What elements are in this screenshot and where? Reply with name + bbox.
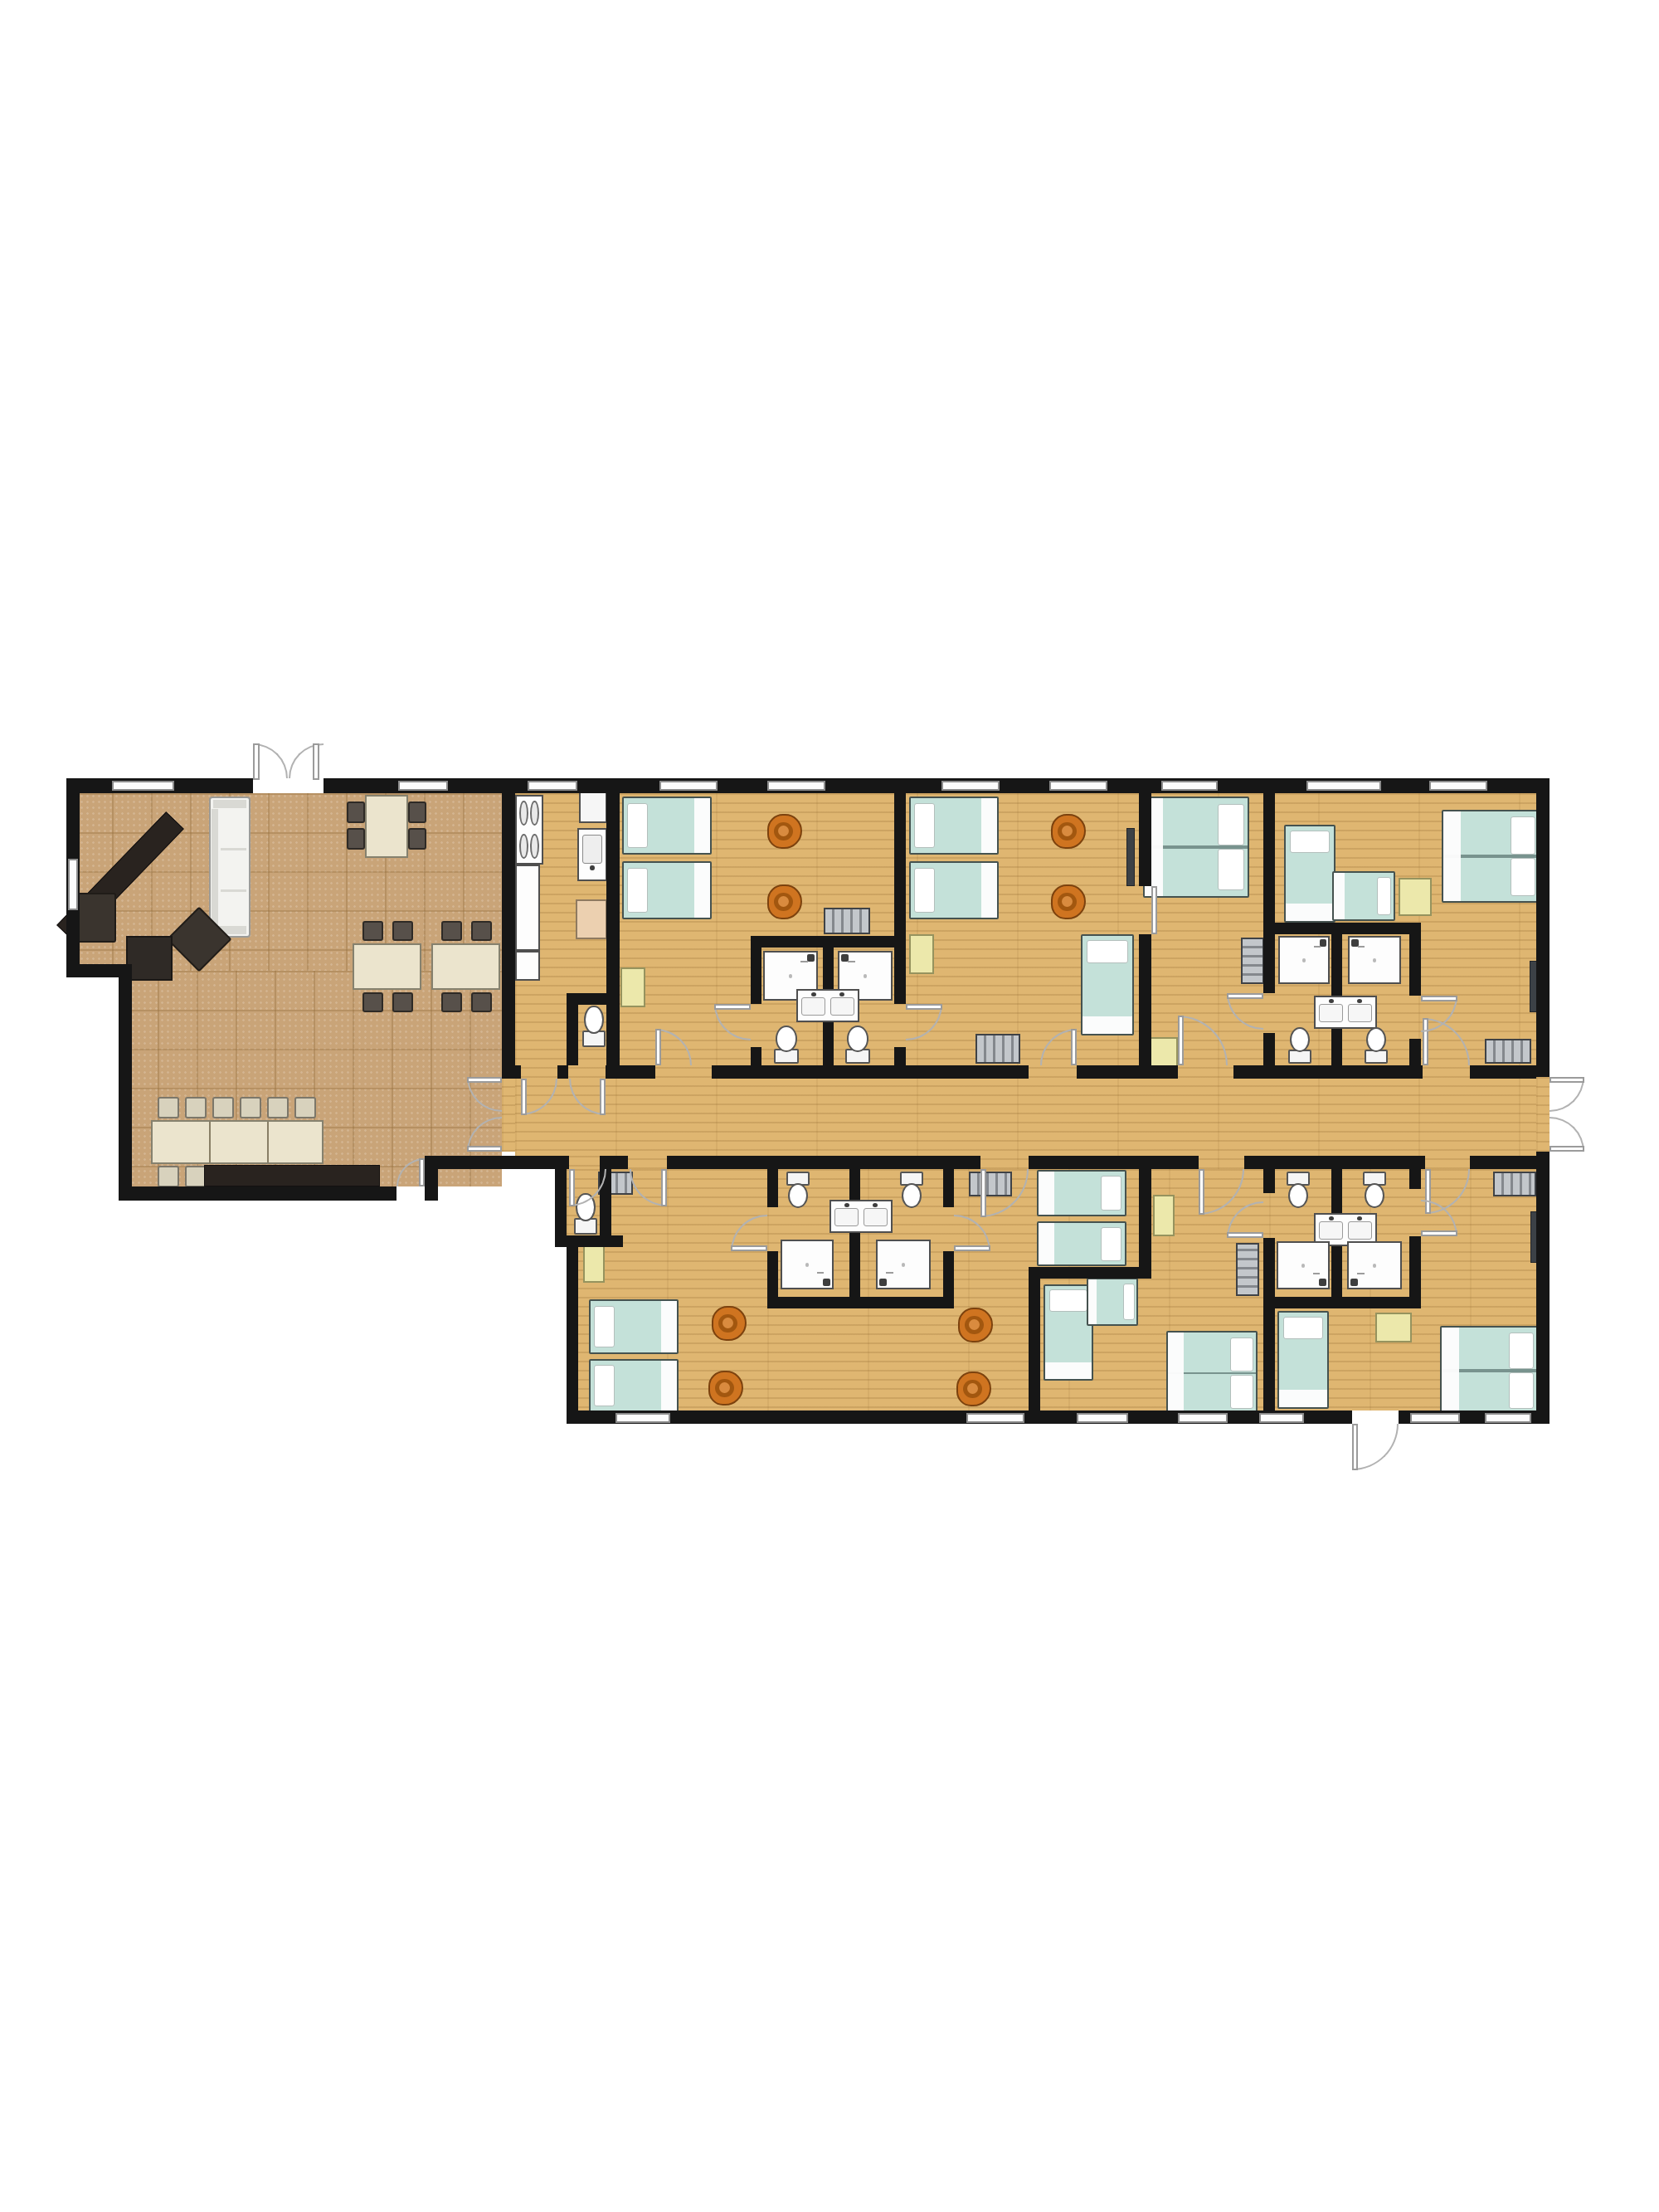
double-washbasin	[1314, 996, 1377, 1029]
wall	[555, 1235, 623, 1247]
shower	[1277, 1241, 1330, 1289]
shower-head	[1319, 1279, 1326, 1286]
bathroom-south-2-left-door	[1227, 1232, 1263, 1238]
sheet	[1039, 1172, 1054, 1215]
wall	[1139, 1169, 1151, 1277]
chaird	[362, 921, 383, 941]
wall	[894, 793, 906, 1004]
toilet	[782, 1172, 814, 1210]
chaird	[471, 921, 492, 941]
wall	[1029, 1156, 1199, 1169]
nstand	[583, 1241, 605, 1283]
chaird	[347, 801, 365, 823]
window	[615, 1413, 670, 1423]
kitchen-door	[521, 1079, 527, 1115]
toilet-bowl	[847, 1026, 868, 1052]
common-room-entrance-left-leaf	[253, 743, 260, 780]
toilet	[1359, 1172, 1390, 1210]
toilet	[1360, 1026, 1392, 1064]
nstand	[1399, 878, 1432, 916]
wall	[1331, 934, 1342, 996]
wall	[567, 993, 578, 1065]
shower	[1347, 1241, 1402, 1289]
single-bed	[589, 1299, 679, 1354]
burner	[519, 801, 528, 826]
pillow	[1283, 1317, 1323, 1339]
basin	[1348, 1221, 1372, 1240]
shower-hose	[800, 961, 808, 962]
wall	[1029, 1267, 1151, 1279]
wall	[555, 1156, 567, 1247]
wall	[823, 1022, 834, 1065]
shower	[876, 1240, 931, 1289]
ward	[1493, 1172, 1536, 1196]
family-room-north-2-door	[1071, 1029, 1077, 1065]
chaird	[441, 992, 462, 1012]
nstand	[909, 934, 934, 974]
basin	[1319, 1221, 1343, 1240]
corridor-west-double-door-lower	[467, 1146, 502, 1152]
pillow	[1230, 1375, 1253, 1409]
pillow	[594, 1306, 615, 1348]
dining-table-a	[353, 943, 421, 990]
corridor-east-door-floor	[1536, 1077, 1550, 1152]
wall	[1409, 1169, 1421, 1189]
single-bed	[1037, 1170, 1126, 1216]
faucet	[873, 1203, 878, 1207]
common-room-entrance-right-leaf	[313, 743, 319, 780]
shower-hose	[1313, 1273, 1320, 1274]
chaird	[362, 992, 383, 1012]
shower-hose	[1358, 946, 1365, 948]
cushion-seam	[221, 848, 246, 850]
basin	[801, 997, 825, 1016]
toilet	[896, 1172, 927, 1210]
toilet-bowl	[1365, 1183, 1384, 1208]
bathroom-north-2-right-door	[1421, 996, 1457, 1001]
faucet	[844, 1203, 849, 1207]
shower-head	[823, 1279, 829, 1286]
wall	[502, 1065, 521, 1079]
sheet	[981, 863, 997, 918]
shower-drain	[864, 974, 868, 978]
wall	[606, 793, 620, 1065]
faucet	[1329, 1216, 1334, 1220]
sheet	[1039, 1223, 1054, 1264]
banquet-table-12	[151, 1120, 324, 1164]
white-sofa	[209, 797, 251, 938]
pillow	[1101, 1176, 1121, 1211]
wall	[1536, 778, 1550, 1077]
chaird	[392, 921, 413, 941]
window	[659, 781, 718, 791]
window	[966, 1413, 1024, 1423]
faucet	[839, 992, 844, 996]
toilet-bowl	[776, 1026, 797, 1052]
wall	[767, 1297, 954, 1308]
common-room-exterior-door-south	[419, 1158, 425, 1186]
bathroom-north-1-right-door	[906, 1004, 942, 1010]
sheet	[661, 1361, 677, 1411]
faucet	[1329, 999, 1334, 1003]
pillow	[1511, 816, 1535, 854]
wc-north-toilet	[579, 1004, 609, 1047]
basin	[830, 997, 854, 1016]
ward-v	[1241, 938, 1264, 984]
shower-drain	[1373, 1264, 1377, 1268]
pillow	[627, 868, 648, 913]
bathroom-north-2-left-door	[1227, 993, 1263, 999]
pillow	[1509, 1372, 1534, 1409]
window	[1306, 781, 1381, 791]
shower-drain	[805, 1263, 810, 1267]
window	[1077, 1413, 1128, 1423]
page	[0, 0, 1659, 2212]
pillow	[1509, 1333, 1534, 1369]
wall	[1263, 1033, 1275, 1065]
wall	[751, 936, 906, 948]
wall	[119, 964, 132, 1201]
shower	[1348, 936, 1401, 984]
shower-head	[879, 1279, 887, 1286]
burner	[530, 801, 539, 826]
chairb	[158, 1166, 179, 1187]
bathroom-south-1-left-door	[731, 1245, 767, 1251]
cushion-seam	[221, 889, 246, 892]
wall	[1263, 793, 1275, 993]
double-room-north-3-door	[1178, 1016, 1184, 1065]
dining-table-b	[431, 943, 500, 990]
pillow	[1290, 831, 1330, 853]
pillow	[1511, 858, 1535, 895]
wall	[894, 1047, 906, 1065]
wall	[1263, 1169, 1275, 1193]
basin	[1348, 1004, 1372, 1022]
sheet	[1279, 1390, 1327, 1407]
alcove-single-bed	[1277, 1311, 1329, 1409]
window	[1259, 1413, 1304, 1423]
faucet	[811, 992, 816, 996]
window	[1178, 1413, 1228, 1423]
shower-drain	[789, 974, 793, 978]
keyboard-piano	[204, 1165, 380, 1186]
sheet	[1088, 1279, 1097, 1324]
window	[941, 781, 1000, 791]
shower	[781, 1240, 834, 1289]
wall	[823, 948, 834, 989]
sheet	[1334, 873, 1345, 919]
exterior-door-south-swing-arc	[1352, 1424, 1399, 1470]
pillow	[1101, 1227, 1121, 1261]
toilet	[841, 1024, 874, 1064]
sheet	[981, 798, 997, 853]
twin-room-south-1-door	[661, 1169, 667, 1206]
basin	[582, 835, 601, 864]
sheet	[694, 863, 710, 918]
window	[528, 781, 577, 791]
wall	[606, 1065, 655, 1079]
faucet	[1357, 999, 1362, 1003]
corridor-east-double-door-upper	[1550, 1077, 1584, 1083]
fridge	[579, 790, 607, 823]
window	[398, 781, 448, 791]
corridor-east-double-door-lower	[1550, 1146, 1584, 1152]
wall	[1470, 1065, 1536, 1079]
wall	[1029, 1267, 1040, 1415]
exterior-door-south	[1352, 1424, 1358, 1470]
shower-drain	[902, 1263, 906, 1267]
basin	[1319, 1004, 1343, 1022]
double-washbasin	[796, 989, 859, 1022]
sheet	[1082, 1016, 1132, 1034]
radiator	[1485, 1039, 1531, 1064]
wall	[849, 1233, 860, 1297]
toilet	[1282, 1172, 1314, 1210]
kitchen-sink-unit	[515, 951, 540, 981]
stove	[515, 795, 543, 865]
wall	[1263, 1308, 1275, 1415]
burner	[530, 834, 539, 859]
sheet	[1286, 904, 1334, 921]
wall	[712, 1065, 1029, 1079]
shower-hose	[817, 1272, 824, 1274]
shower-hose	[848, 961, 855, 962]
wc-north-door	[600, 1079, 606, 1115]
chairb	[158, 1097, 179, 1118]
wall	[751, 936, 761, 1004]
toilet-bowl	[584, 1006, 603, 1034]
wall	[1536, 1152, 1550, 1424]
ward-v	[1236, 1243, 1259, 1296]
wall	[1233, 1065, 1423, 1079]
single-bed	[622, 861, 712, 919]
wall	[1263, 923, 1421, 934]
sheet	[661, 1301, 677, 1352]
pillow	[1123, 1284, 1135, 1320]
corner-single-bed	[1087, 1278, 1138, 1326]
wall	[1263, 1297, 1421, 1308]
sheet	[694, 798, 710, 853]
kitchen-counter	[515, 865, 540, 951]
pillow	[1049, 1289, 1087, 1312]
wall	[1409, 923, 1421, 996]
wall	[1331, 1246, 1342, 1297]
chairb	[240, 1097, 261, 1118]
burner	[519, 834, 528, 859]
single-bed	[1037, 1221, 1126, 1266]
corner-single-bed	[1332, 871, 1395, 921]
pillow	[914, 868, 935, 913]
corridor-west-double-door-upper	[467, 1077, 502, 1083]
pillow	[1218, 804, 1244, 845]
shower-head	[1350, 1279, 1358, 1286]
shower-drain	[1373, 958, 1377, 962]
ward	[975, 1034, 1020, 1064]
window	[1410, 1413, 1460, 1423]
wall	[849, 1169, 860, 1200]
toilet-bowl	[788, 1183, 808, 1208]
single-bed	[909, 797, 999, 855]
chaird	[347, 828, 365, 850]
dark-coffee-table	[126, 936, 173, 981]
wall	[767, 1169, 778, 1207]
shower-drain	[1301, 1264, 1306, 1268]
wall	[1077, 1065, 1178, 1079]
wc-south-door	[569, 1169, 575, 1206]
shower	[1278, 936, 1330, 984]
wall	[1409, 1039, 1421, 1065]
chaird	[471, 992, 492, 1012]
ward	[824, 908, 870, 934]
wall	[751, 1047, 761, 1065]
double-bed	[1143, 797, 1249, 898]
family-room-south-3-door	[1199, 1169, 1204, 1215]
bathroom-south-1-right-door	[954, 1245, 990, 1251]
corridor-west-door-floor	[502, 1077, 515, 1152]
wall	[502, 793, 515, 1077]
pillow	[1087, 940, 1127, 963]
armrest	[213, 800, 246, 808]
nstand	[1153, 1195, 1175, 1236]
chairb	[294, 1097, 316, 1118]
twin-room-south-2-door	[980, 1169, 986, 1217]
wall	[1139, 934, 1151, 1065]
shower-hose	[886, 1272, 893, 1274]
kitchen-appliance	[576, 899, 607, 939]
dining-table-4	[365, 795, 408, 858]
toilet-bowl	[1366, 1027, 1386, 1052]
pillow	[594, 1365, 615, 1406]
toilet-bowl	[1288, 1183, 1308, 1208]
room-2-3-connecting-leaf	[1151, 886, 1157, 934]
toilet-bowl	[902, 1183, 922, 1208]
kitchen-basin	[577, 828, 607, 881]
chaird	[392, 992, 413, 1012]
toilet	[770, 1024, 803, 1064]
basin	[864, 1208, 888, 1226]
window	[1161, 781, 1218, 791]
bathroom-south-2-right-door	[1421, 1230, 1457, 1236]
single-bed	[589, 1359, 679, 1412]
nstand	[620, 967, 645, 1007]
wall	[567, 1241, 578, 1424]
pillow	[1218, 849, 1244, 890]
twin-room-north-1-door	[655, 1029, 661, 1065]
sheet	[1443, 811, 1461, 901]
chaird	[408, 828, 426, 850]
toilet-bowl	[1290, 1027, 1310, 1052]
pillow	[627, 803, 648, 848]
window	[68, 859, 78, 910]
chairb	[185, 1097, 207, 1118]
wall	[667, 1156, 980, 1169]
double-bed	[1440, 1326, 1538, 1415]
faucet	[590, 865, 594, 870]
chairb	[212, 1097, 234, 1118]
wall	[425, 1156, 569, 1169]
corner-single-bed	[1284, 825, 1335, 923]
wall-tv	[1126, 828, 1135, 886]
wall	[1331, 1169, 1342, 1213]
shower-head	[1320, 939, 1326, 947]
window	[1429, 781, 1487, 791]
single-bed	[909, 861, 999, 919]
wall	[1139, 793, 1151, 886]
double-bed	[1442, 810, 1540, 903]
shower-head	[807, 954, 815, 962]
pillow	[1377, 877, 1391, 915]
sheet	[1045, 1362, 1092, 1379]
window	[1485, 1413, 1531, 1423]
shower-hose	[1314, 946, 1321, 948]
wall	[943, 1169, 954, 1207]
wall	[1244, 1156, 1425, 1169]
toilet	[1284, 1026, 1316, 1064]
basin	[834, 1208, 859, 1226]
bathroom-north-1-left-door	[714, 1004, 751, 1010]
pillow	[914, 803, 935, 848]
nstand	[1375, 1313, 1412, 1342]
single-bed	[622, 797, 712, 855]
backrest	[212, 809, 218, 924]
window	[1049, 781, 1107, 791]
sheet	[1442, 1328, 1459, 1414]
faucet	[1357, 1216, 1362, 1220]
window	[767, 781, 825, 791]
wall	[567, 1411, 1352, 1424]
floor-plan	[0, 0, 1659, 2212]
corner-single-bed	[1044, 1284, 1093, 1381]
window	[112, 781, 174, 791]
wall	[119, 1186, 397, 1201]
chaird	[408, 801, 426, 823]
shower-drain	[1302, 958, 1306, 962]
sheet	[1168, 1333, 1184, 1414]
wall	[557, 1065, 568, 1079]
wall	[1331, 1029, 1342, 1065]
double-bed	[1166, 1331, 1258, 1415]
pillow	[1230, 1337, 1253, 1372]
chairb	[267, 1097, 289, 1118]
chaird	[441, 921, 462, 941]
shower-hose	[1357, 1273, 1365, 1274]
alcove-single-bed	[1081, 934, 1134, 1035]
double-washbasin	[829, 1200, 893, 1233]
